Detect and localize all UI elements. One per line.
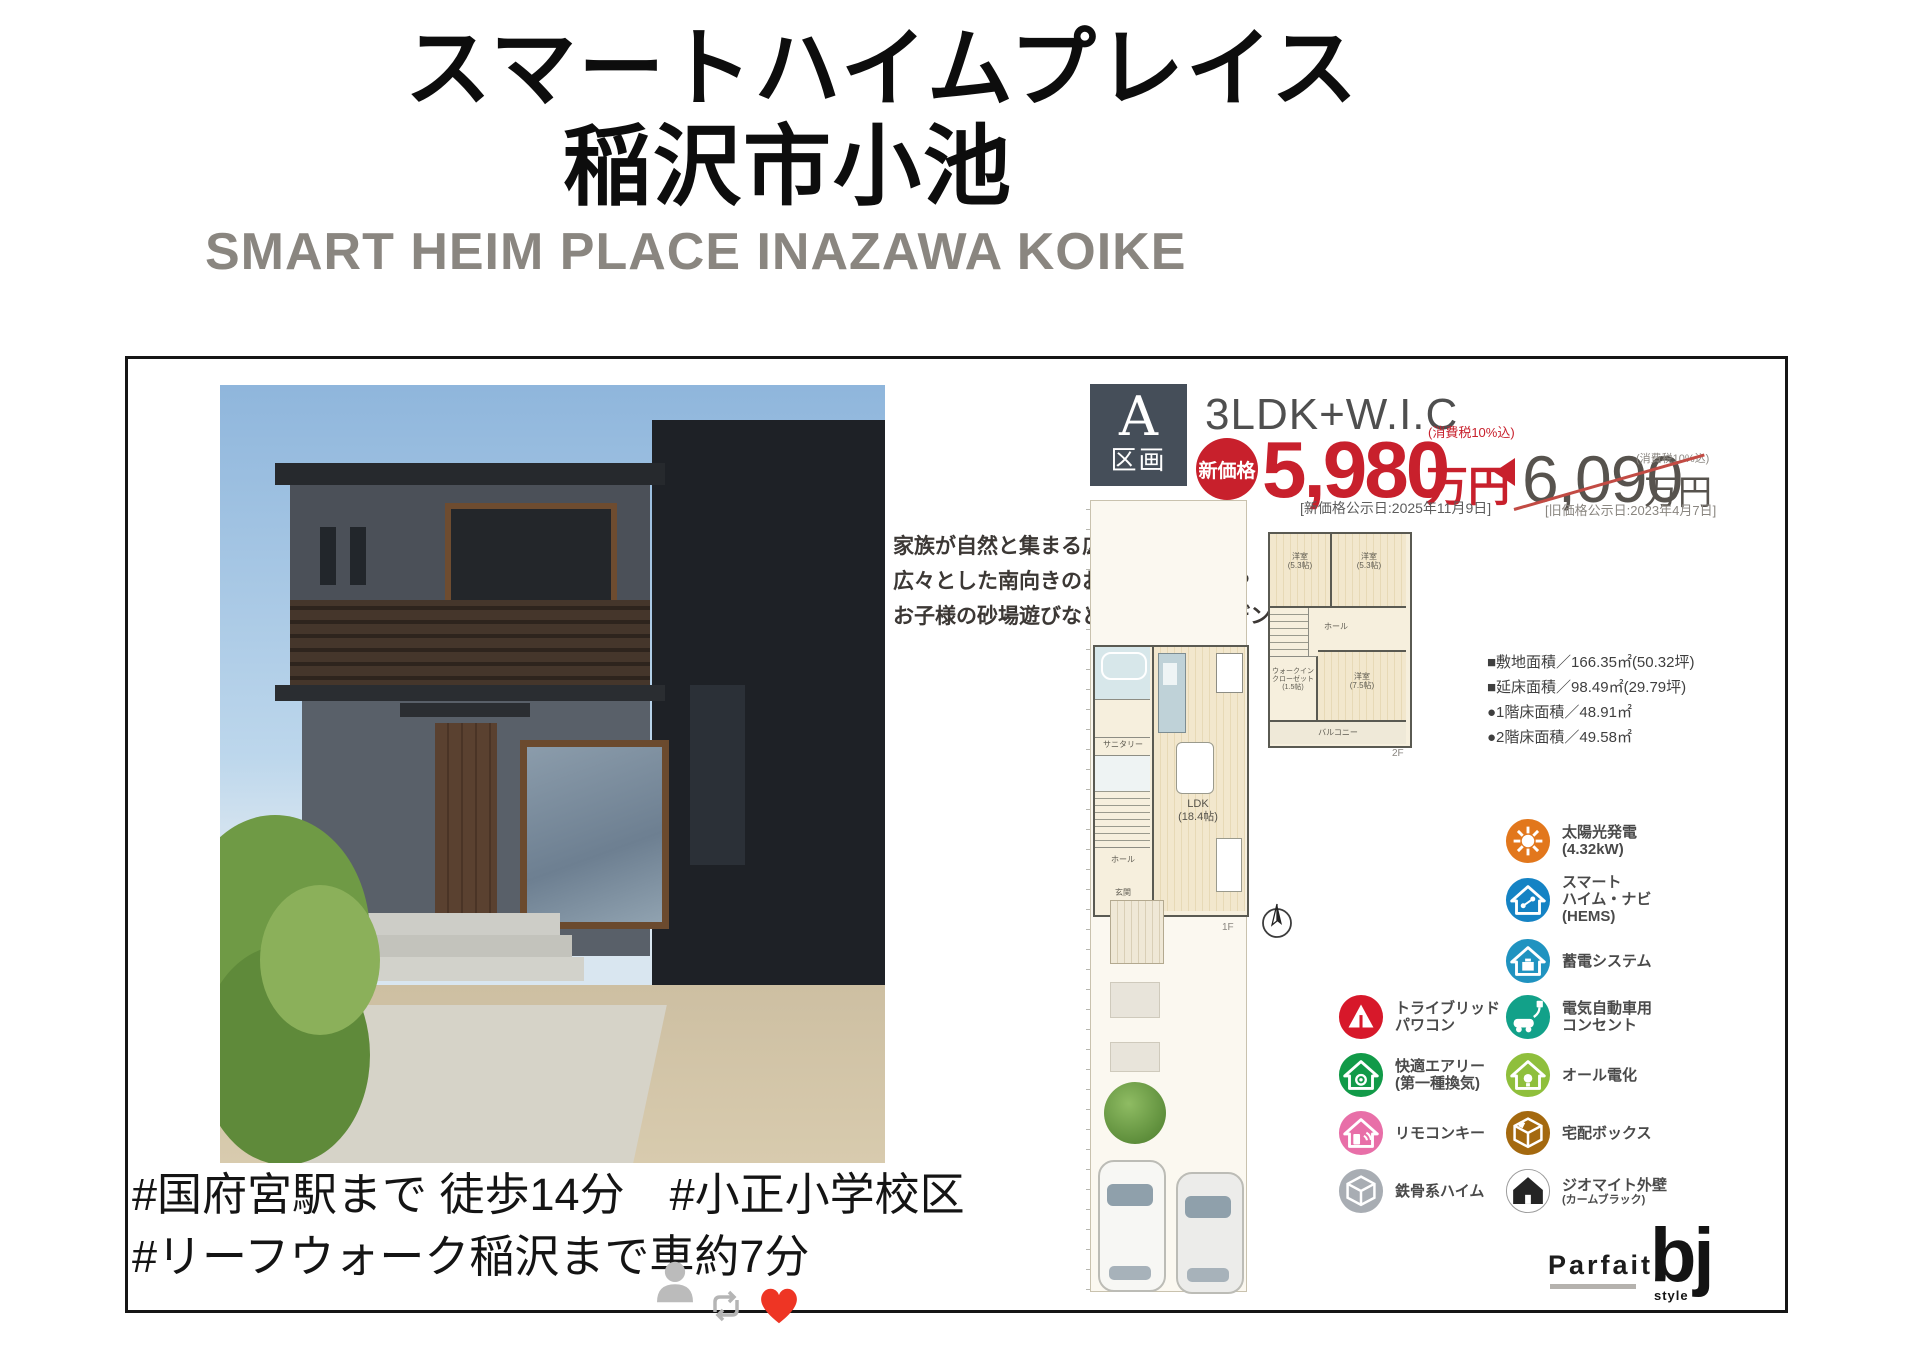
feature-delivery-box: 宅配ボックス xyxy=(1505,1110,1775,1156)
site-car xyxy=(1098,1160,1166,1292)
plan2-stairs xyxy=(1270,608,1309,656)
car-rear-window xyxy=(1109,1266,1151,1280)
photo-balcony xyxy=(290,600,650,690)
page-title-line2: 稲沢市小池 xyxy=(563,122,1013,210)
feature-label: スマート ハイム・ナビ (HEMS) xyxy=(1562,874,1651,925)
feature-label: リモコンキー xyxy=(1395,1125,1485,1142)
all-electric-icon xyxy=(1505,1052,1551,1098)
site-paving xyxy=(1110,1042,1160,1072)
photo-step xyxy=(360,913,560,935)
ev-outlet-icon xyxy=(1505,994,1551,1040)
feature-label: 快適エアリー (第一種換気) xyxy=(1395,1058,1485,1092)
photo-step xyxy=(348,935,572,957)
plan2-hall-label: ホール xyxy=(1316,622,1356,631)
compass-icon xyxy=(1255,896,1299,944)
plan1-sink xyxy=(1163,663,1177,685)
feature-battery: 蓄電システム xyxy=(1505,938,1775,984)
plan1-entrance-label: 玄関 xyxy=(1096,888,1150,897)
solar-power-icon xyxy=(1505,818,1551,864)
photo-front-door xyxy=(435,723,497,915)
new-price-tax-note: (消費税10%込) xyxy=(1428,422,1515,441)
photo-eave xyxy=(275,685,665,701)
remote-key-icon xyxy=(1338,1110,1384,1156)
feature-all-electric: オール電化 xyxy=(1505,1052,1775,1098)
feature-geomite-wall: ジオマイト外壁 (カームブラック) xyxy=(1505,1168,1775,1214)
photo-slim-window xyxy=(320,527,336,585)
plan1-dining-table xyxy=(1176,742,1214,794)
car-rear-window xyxy=(1187,1268,1229,1282)
block-label: A 区画 xyxy=(1090,384,1187,486)
site-car xyxy=(1176,1172,1244,1294)
plan2-room-b xyxy=(1332,534,1406,608)
car-windshield xyxy=(1185,1196,1231,1218)
brand-logo-style: style xyxy=(1654,1288,1689,1303)
feature-label: オール電化 xyxy=(1562,1067,1637,1084)
photo-neighbor-window xyxy=(690,685,745,865)
page-title-line1: スマートハイムプレイス xyxy=(405,26,1359,112)
old-price-date-note: [旧価格公示日:2023年4月7日] xyxy=(1545,500,1716,519)
smart-heim-navi-icon xyxy=(1505,877,1551,923)
plan1-hall-label: ホール xyxy=(1096,855,1150,864)
area-figures: ■敷地面積／166.35㎡(50.32坪) ■延床面積／98.49㎡(29.79… xyxy=(1487,650,1694,750)
feature-label: 太陽光発電 (4.32kW) xyxy=(1562,824,1637,858)
plan2-room-a-label: 洋室 (5.3帖) xyxy=(1272,552,1328,570)
feature-label: ジオマイト外壁 xyxy=(1562,1177,1667,1194)
brand-logo-parfait: Parfait xyxy=(1548,1250,1653,1281)
repost-icon[interactable] xyxy=(702,1282,750,1330)
plan1-washroom xyxy=(1095,699,1150,738)
floor-area-total: ■延床面積／98.49㎡(29.79坪) xyxy=(1487,675,1694,700)
price-drop-arrow-icon xyxy=(1494,458,1515,486)
brand-logo-tagline xyxy=(1550,1284,1636,1289)
like-heart-icon[interactable] xyxy=(752,1276,806,1330)
site-paving xyxy=(1110,982,1160,1018)
floor2-tag: 2F xyxy=(1392,748,1404,759)
feature-solar: 太陽光発電 (4.32kW) xyxy=(1505,818,1775,864)
geomite-wall-icon xyxy=(1505,1168,1551,1214)
photo-roof xyxy=(275,463,665,485)
feature-label: 鉄骨系ハイム xyxy=(1395,1183,1484,1200)
house-photo xyxy=(220,385,885,1163)
car-windshield xyxy=(1107,1184,1153,1206)
tribrid-power-icon xyxy=(1338,994,1384,1040)
photo-bush xyxy=(260,885,380,1035)
site-deck xyxy=(1110,900,1164,964)
block-word: 区画 xyxy=(1090,446,1187,474)
feature-ev-outlet: 電気自動車用 コンセント xyxy=(1505,994,1775,1040)
new-price-badge: 新価格 xyxy=(1196,438,1258,500)
site-tree xyxy=(1104,1082,1166,1144)
photo-neighbor-building xyxy=(652,420,885,1005)
feature-heim-navi: スマート ハイム・ナビ (HEMS) xyxy=(1505,874,1775,925)
floor-area-1f: ●1階床面積／48.91㎡ xyxy=(1487,700,1694,725)
person-icon[interactable] xyxy=(648,1255,702,1309)
plan2-room-a xyxy=(1270,534,1332,608)
site-area: ■敷地面積／166.35㎡(50.32坪) xyxy=(1487,650,1694,675)
plan1-sanitary-label: サニタリー xyxy=(1096,740,1150,749)
delivery-box-icon xyxy=(1505,1110,1551,1156)
plan2-balcony-label: バルコニー xyxy=(1318,728,1358,737)
air-ventilation-icon xyxy=(1338,1052,1384,1098)
plan1-stairs xyxy=(1095,791,1150,848)
feature-label: 蓄電システム xyxy=(1562,953,1652,970)
plan2-balcony: バルコニー xyxy=(1270,720,1406,744)
plan1-ldk-label: LDK (18.4帖) xyxy=(1168,798,1228,824)
feature-label: トライブリッド パワコン xyxy=(1395,1000,1500,1034)
photo-upper-window xyxy=(445,503,617,615)
floor1-tag: 1F xyxy=(1222,922,1234,933)
plan1-sofa xyxy=(1216,838,1242,892)
plan2-room-c-label: 洋室 (7.5帖) xyxy=(1336,672,1388,690)
battery-system-icon xyxy=(1505,938,1551,984)
brand-logo-bj: bj xyxy=(1650,1218,1712,1294)
plan2-wic-label: ウォークイン クローゼット (1.5帖) xyxy=(1268,668,1318,692)
photo-door-canopy xyxy=(400,703,530,717)
hashtag-line1: #国府宮駅まで 徒歩14分 #小正小学校区 xyxy=(132,1168,965,1222)
feature-label: 宅配ボックス xyxy=(1562,1125,1652,1142)
photo-lower-window xyxy=(520,740,669,929)
new-price-date-note: [新価格公示日:2025年11月9日] xyxy=(1300,498,1491,518)
feature-label: 電気自動車用 コンセント xyxy=(1562,1000,1652,1034)
feature-sublabel: (カームブラック) xyxy=(1562,1194,1667,1206)
block-letter: A xyxy=(1090,388,1187,446)
steel-frame-icon xyxy=(1338,1168,1384,1214)
plan2-room-b-label: 洋室 (5.3帖) xyxy=(1340,552,1398,570)
plan1-toilet xyxy=(1095,755,1150,793)
floor-area-2f: ●2階床面積／49.58㎡ xyxy=(1487,725,1694,750)
page-subtitle: SMART HEIM PLACE INAZAWA KOIKE xyxy=(205,222,1186,282)
photo-slim-window xyxy=(350,527,366,585)
plan1-closet xyxy=(1216,653,1243,693)
hashtag-line2: #リーフウォーク稲沢まで車約7分 xyxy=(132,1230,809,1284)
plan1-bathtub xyxy=(1101,652,1147,680)
